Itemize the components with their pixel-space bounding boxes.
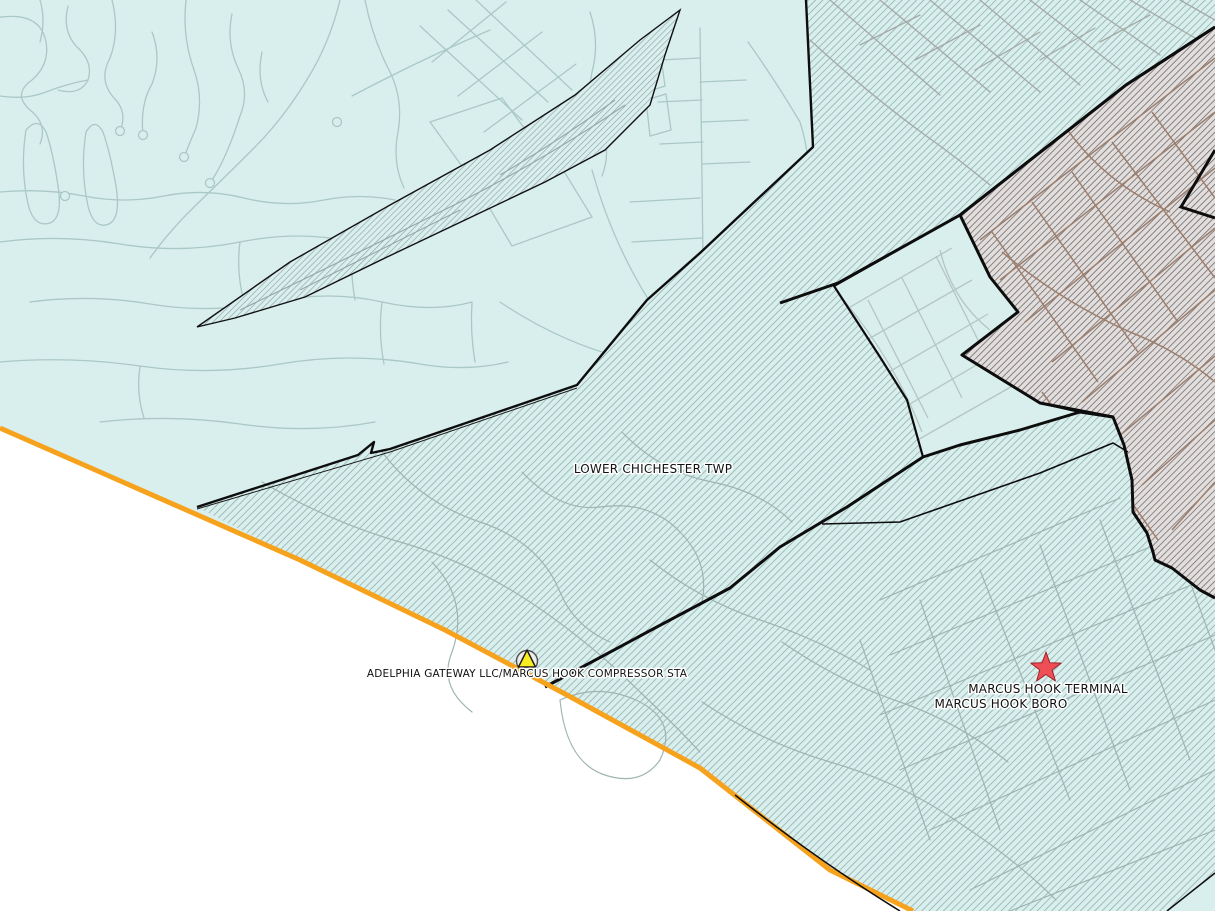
terminal-label: MARCUS HOOK TERMINAL [968, 682, 1128, 696]
facility-label: ADELPHIA GATEWAY LLC/MARCUS HOOK COMPRES… [367, 668, 688, 680]
borough-label: MARCUS HOOK BORO [935, 697, 1068, 711]
map-viewport[interactable]: LOWER CHICHESTER TWP ADELPHIA GATEWAY LL… [0, 0, 1215, 911]
map-canvas[interactable]: LOWER CHICHESTER TWP ADELPHIA GATEWAY LL… [0, 0, 1215, 911]
township-label: LOWER CHICHESTER TWP [574, 462, 732, 476]
